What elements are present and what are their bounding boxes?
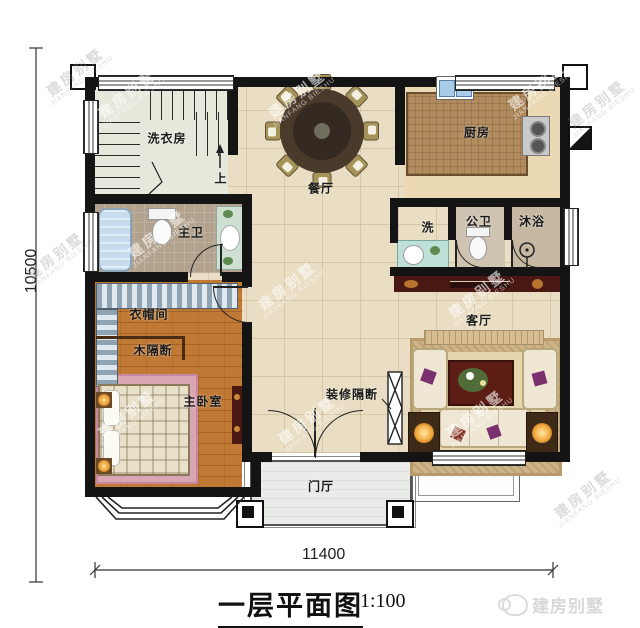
wall xyxy=(390,198,570,207)
wall xyxy=(448,206,456,240)
room-label-cloakroom: 衣帽间 xyxy=(129,306,168,323)
label-deco-partition: 装修隔断 xyxy=(326,386,378,403)
pillow xyxy=(486,424,501,439)
wall xyxy=(504,206,512,240)
vanity-sink-icon xyxy=(220,225,240,251)
stove xyxy=(522,116,550,156)
coffee-table xyxy=(448,360,514,406)
lamp-icon xyxy=(532,423,552,443)
watermark-en: JIANFANG BIESHU xyxy=(545,467,636,541)
window xyxy=(455,75,555,91)
chair-cushion xyxy=(352,160,364,172)
wall xyxy=(395,77,405,165)
wall xyxy=(85,194,242,204)
chair-cushion xyxy=(368,126,376,135)
window xyxy=(563,208,579,266)
lamp-icon xyxy=(98,394,110,406)
stair-treads-right xyxy=(196,112,228,156)
plant-icon xyxy=(430,246,440,255)
cabinet-decor xyxy=(234,426,240,432)
brand-logo: 建房别墅 xyxy=(502,592,604,617)
pillow xyxy=(450,426,466,442)
lamp-icon xyxy=(414,423,434,443)
flower-decor xyxy=(466,372,474,380)
window xyxy=(98,75,234,91)
pillow xyxy=(532,371,548,387)
side-table xyxy=(526,412,558,454)
room-label-laundry: 洗衣房 xyxy=(147,130,186,147)
armchair xyxy=(522,348,558,410)
porch-column xyxy=(386,500,414,528)
shower-door-leaf xyxy=(511,240,513,267)
sofa-back-console xyxy=(424,330,544,345)
room-label-wash: 洗 xyxy=(421,219,434,236)
cabinet-decor xyxy=(404,280,418,288)
sink-basin-left xyxy=(439,80,455,97)
porch-column xyxy=(236,500,264,528)
wood-partition-line xyxy=(96,336,184,339)
wall xyxy=(222,272,252,282)
wood-partition-line xyxy=(182,336,185,360)
wall xyxy=(85,272,188,282)
wall xyxy=(85,487,261,497)
room-label-shower: 沐浴 xyxy=(519,213,545,230)
flue-icon xyxy=(568,126,592,150)
wall xyxy=(390,267,562,276)
side-table xyxy=(408,412,440,454)
dimension-height: 10500 xyxy=(23,231,41,311)
room-label-public-bath: 公卫 xyxy=(466,213,492,230)
cabinet-decor xyxy=(532,279,543,289)
lamp-icon xyxy=(98,460,110,472)
toilet-icon xyxy=(152,219,172,245)
room-label-master-bath: 主卫 xyxy=(178,224,204,241)
wall xyxy=(390,198,398,243)
plant-icon xyxy=(223,257,233,265)
wash-counter xyxy=(397,240,449,269)
dimension-width: 11400 xyxy=(302,546,345,564)
wash-basin-icon xyxy=(403,245,424,265)
bathtub xyxy=(98,208,132,272)
chair-cushion xyxy=(280,90,292,102)
label-wood-partition: 木隔断 xyxy=(133,342,172,359)
cabinet-decor xyxy=(234,394,240,400)
room-label-kitchen: 厨房 xyxy=(464,124,490,141)
column-core xyxy=(242,506,254,518)
plant-icon xyxy=(223,210,233,218)
wc-door-leaf xyxy=(455,240,457,267)
pillow xyxy=(420,368,437,385)
wall xyxy=(251,452,261,497)
chair-cushion xyxy=(268,128,276,137)
floor-plan-canvas: 洗衣房 上 餐厅 厨房 主卫 洗 公卫 沐浴 客厅 衣帽间 木隔断 主卧室 装修… xyxy=(0,0,640,628)
flower-decor xyxy=(480,380,486,386)
entry-door-leaf xyxy=(314,408,316,457)
room-label-foyer: 门厅 xyxy=(308,478,334,495)
stair-treads-left xyxy=(94,122,140,194)
room-label-dining: 餐厅 xyxy=(308,180,334,197)
column-core xyxy=(392,506,404,518)
window xyxy=(432,450,526,466)
tv-icon xyxy=(450,281,510,288)
armchair xyxy=(412,348,448,410)
bath-door-leaf xyxy=(220,244,222,276)
chair-cushion xyxy=(281,161,293,173)
tv-cabinet xyxy=(394,276,562,292)
room-label-living: 客厅 xyxy=(466,312,492,329)
plan-scale: 1:100 xyxy=(360,590,406,613)
wall xyxy=(360,452,394,462)
room-label-master-bedroom: 主卧室 xyxy=(183,393,222,410)
stairs-up-label: 上 xyxy=(214,170,227,187)
wall xyxy=(242,322,252,452)
window xyxy=(83,212,99,272)
plan-title: 一层平面图 xyxy=(218,584,363,628)
window xyxy=(83,100,99,154)
dining-chair xyxy=(363,122,379,141)
dining-chair xyxy=(265,122,281,141)
mascot-icon xyxy=(502,594,528,616)
main-sofa xyxy=(438,408,532,448)
wardrobe xyxy=(96,309,118,387)
brand-logo-text: 建房别墅 xyxy=(532,592,604,617)
bedroom-tv-cabinet xyxy=(232,386,242,444)
chair-cushion xyxy=(351,89,363,101)
cloak-door-leaf xyxy=(213,286,248,288)
dining-table-center xyxy=(314,123,330,139)
burner-icon xyxy=(530,121,546,137)
bay-window xyxy=(96,497,244,519)
burner-icon xyxy=(530,138,546,154)
